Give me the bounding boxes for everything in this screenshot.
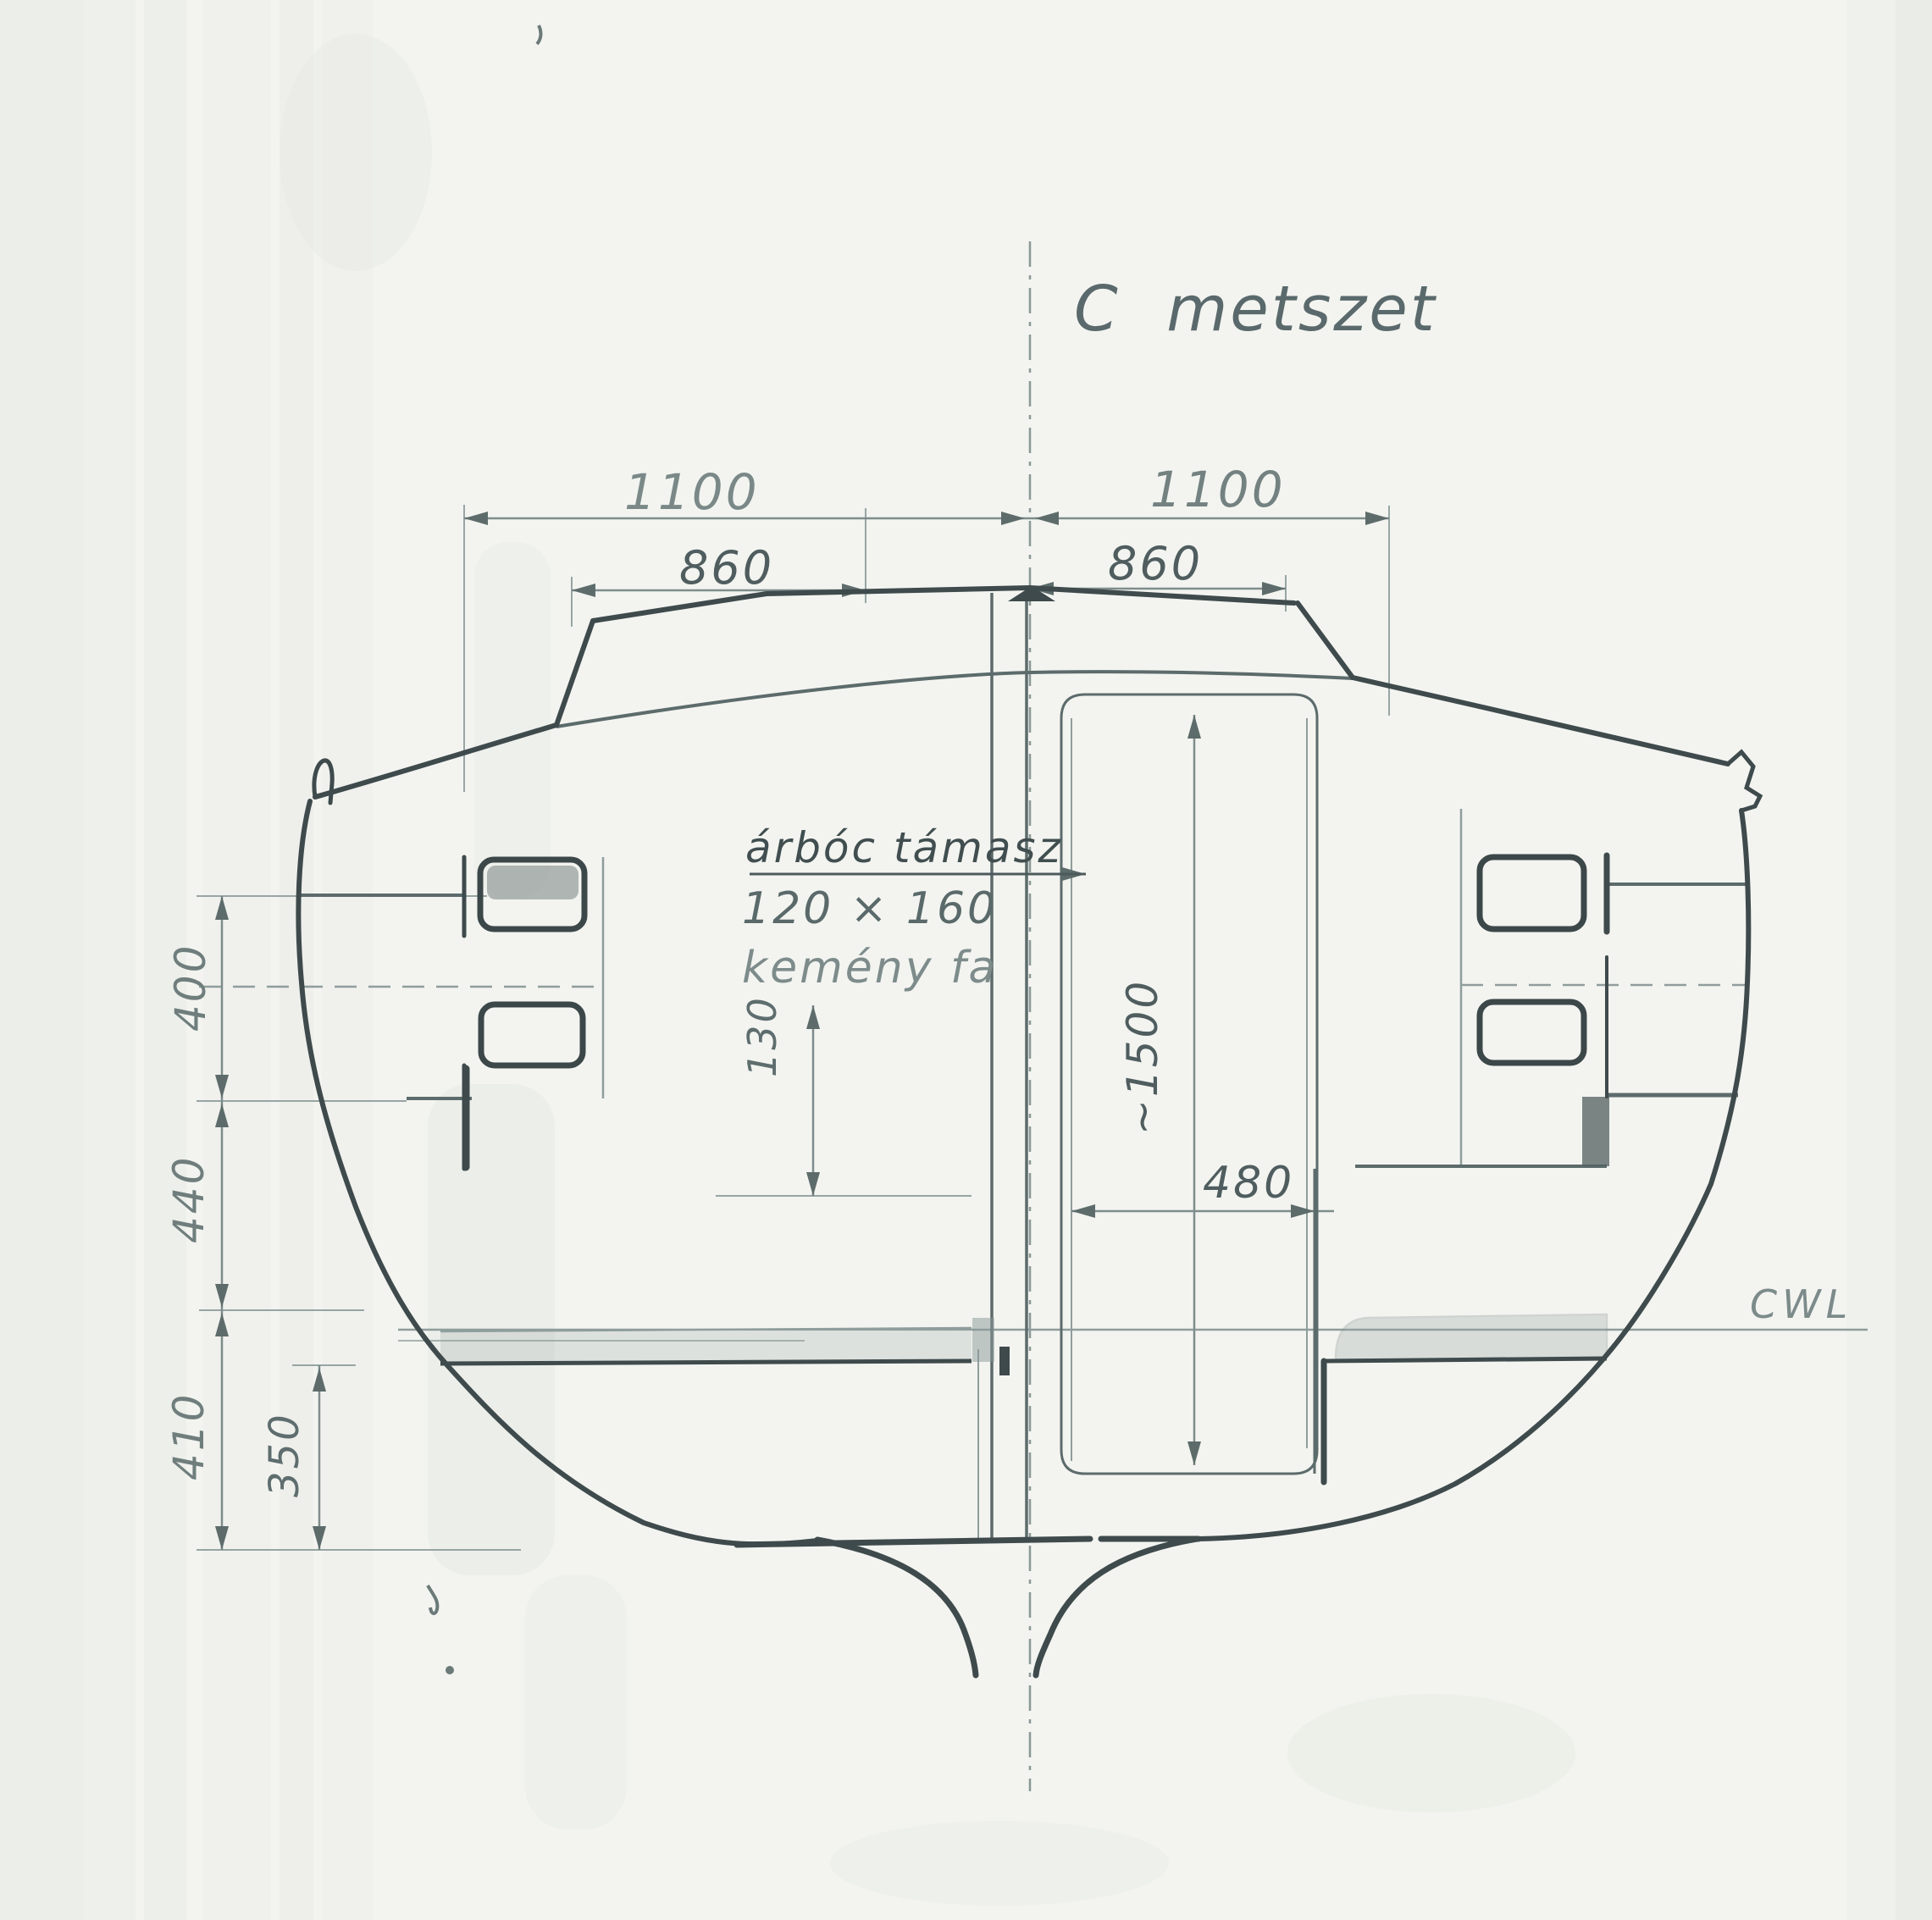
boat-section-drawing: C metszet 1100 1100 860 860 400 440 410 …: [0, 0, 1932, 1920]
dim-label-1500: ~1500: [1118, 979, 1167, 1135]
drawing-title: C metszet: [1074, 273, 1437, 346]
dim-label-350: 350: [261, 1412, 308, 1497]
dim-label-130: 130: [739, 995, 785, 1077]
dim-label-410: 410: [164, 1392, 213, 1480]
right-berth: [1336, 1314, 1607, 1360]
right-shelf-support: [1582, 1097, 1609, 1166]
dim-label-440: 440: [164, 1155, 213, 1243]
left-berth-edge: [440, 1361, 972, 1364]
mast-note-line2: 120 × 160: [742, 883, 998, 934]
dim-label-860-right: 860: [1108, 537, 1203, 590]
scanned-blueprint-page: C metszet 1100 1100 860 860 400 440 410 …: [0, 0, 1932, 1920]
dim-label-480: 480: [1203, 1158, 1294, 1209]
dim-label-400: 400: [166, 943, 215, 1032]
dim-label-1100-left: 1100: [624, 463, 760, 521]
waterline-label: CWL: [1750, 1281, 1852, 1327]
mast-note-line1: árbóc támasz: [745, 823, 1063, 872]
dim-label-1100-right: 1100: [1150, 461, 1286, 518]
left-berth: [440, 1331, 972, 1362]
mast-note-line3: kemény fa: [742, 943, 998, 993]
dim-label-860-left: 860: [679, 541, 774, 595]
right-berth-edge: [1324, 1358, 1607, 1361]
